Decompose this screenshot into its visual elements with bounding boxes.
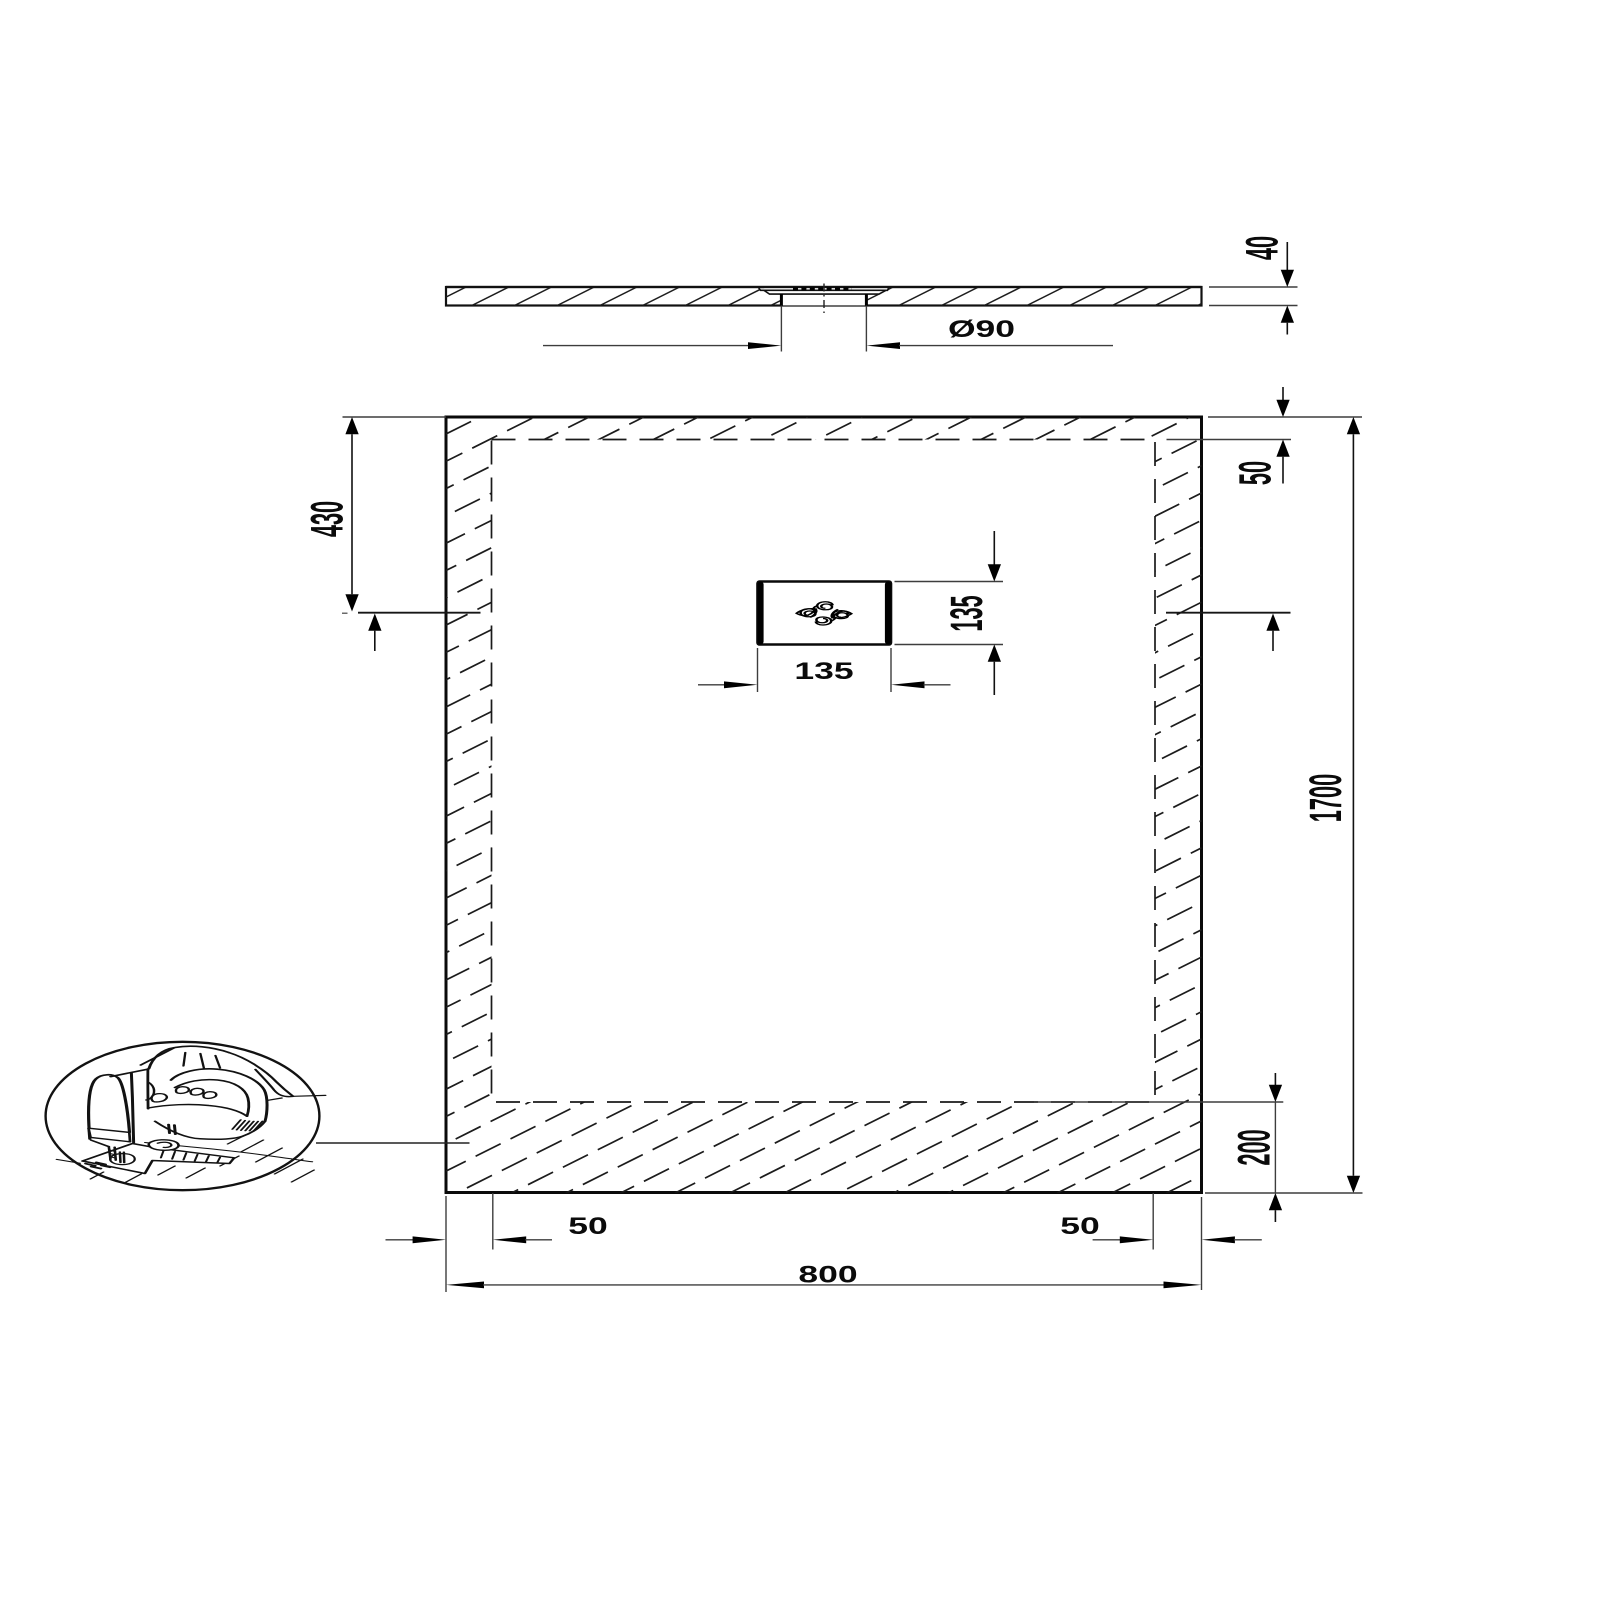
svg-text:200: 200 xyxy=(1229,1129,1280,1165)
svg-text:40: 40 xyxy=(1237,236,1288,260)
svg-text:135: 135 xyxy=(794,657,853,684)
svg-text:50: 50 xyxy=(1230,461,1281,485)
svg-text:800: 800 xyxy=(798,1261,857,1288)
svg-text:1700: 1700 xyxy=(1300,774,1351,822)
svg-text:135: 135 xyxy=(941,595,992,631)
svg-text:50: 50 xyxy=(568,1212,608,1239)
svg-text:Ø90: Ø90 xyxy=(948,315,1015,342)
svg-text:50: 50 xyxy=(1060,1212,1100,1239)
svg-text:430: 430 xyxy=(302,501,353,537)
